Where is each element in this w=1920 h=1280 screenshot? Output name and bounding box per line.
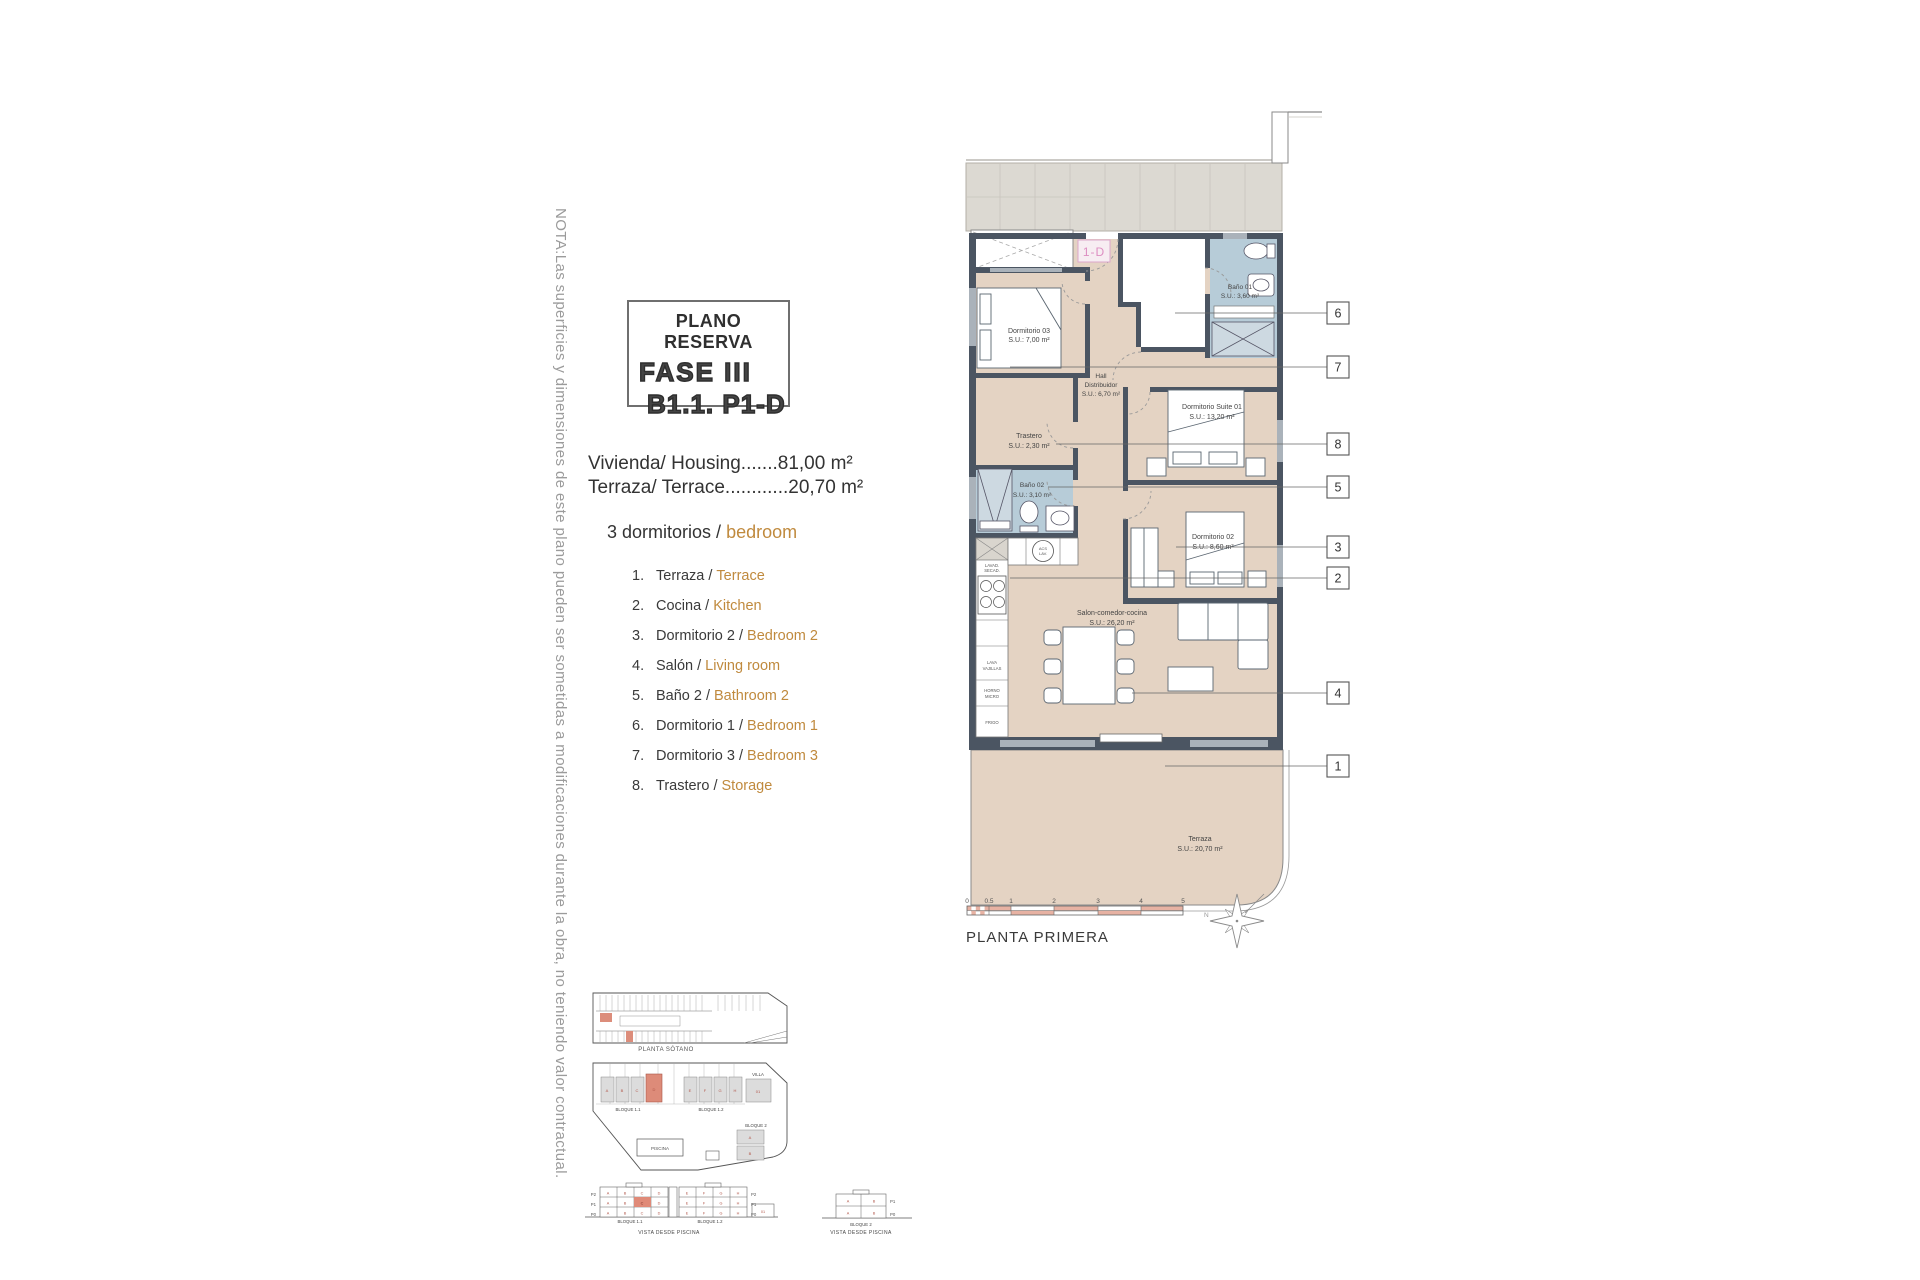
- site-unit-letter: C: [636, 1088, 639, 1093]
- floor-plan: LAVAD. SECAD. LAVA VAJILLAS HORNO MICRO …: [960, 100, 1370, 970]
- legend-item-bano2: 5.Baño 2 /Bathroom 2: [632, 688, 818, 718]
- floor-label-p0: P0: [591, 1212, 597, 1217]
- villa-label: VILLA: [752, 1072, 764, 1077]
- pool-label: PISCINA: [651, 1146, 669, 1151]
- bedrooms-heading-en: bedroom: [726, 522, 797, 542]
- room-area-terraza: S.U.: 20,70 m²: [1177, 846, 1223, 853]
- legend-en: Bedroom 2: [747, 628, 818, 644]
- elev-letter: D: [658, 1192, 661, 1196]
- callout-1: 1: [1335, 760, 1342, 774]
- legend-num: 4.: [632, 658, 656, 674]
- elev-letter: B: [624, 1202, 627, 1206]
- site-unit-letter: B: [749, 1151, 752, 1156]
- callout-2: 2: [1335, 572, 1342, 586]
- floor-title: PLANTA PRIMERA: [966, 929, 1109, 946]
- callout-8: 8: [1335, 438, 1342, 452]
- room-area-trastero: S.U.: 2,30 m²: [1008, 443, 1050, 450]
- room-label-bath1: Baño 01: [1228, 284, 1253, 291]
- elev-letter: H: [737, 1192, 740, 1196]
- legend-es: Salón /: [656, 658, 701, 674]
- legend-en: Kitchen: [713, 598, 761, 614]
- room-legend: 1.Terraza /Terrace 2.Cocina /Kitchen 3.D…: [632, 568, 818, 808]
- site-plan: A B C D E F G H 01 A B BLOQUE 1.1 BLOQUE…: [593, 1063, 787, 1170]
- area-summary: Vivienda/ Housing.......81,00 m² Terraza…: [588, 452, 863, 500]
- block2-elev-caption: BLOQUE 2: [850, 1222, 872, 1227]
- elev-letter: C: [641, 1212, 644, 1216]
- elev-letter: A: [607, 1202, 610, 1206]
- contract-note-vertical: NOTA:Las superficies y dimensiones de es…: [552, 208, 569, 1088]
- elevations: ABCD ABCD ABCD EFGH EFGH EFGH 01 P2 P1 P…: [585, 1183, 912, 1236]
- block12-elev-caption: BLOQUE 1.2: [697, 1219, 723, 1224]
- elev-letter: B: [624, 1192, 627, 1196]
- elev-letter: E: [686, 1192, 689, 1196]
- elev-letter: H: [737, 1212, 740, 1216]
- legend-es: Dormitorio 3 /: [656, 748, 743, 764]
- legend-en: Bedroom 3: [747, 748, 818, 764]
- room-label-bath2: Baño 02: [1020, 482, 1045, 489]
- elev-letter: C: [641, 1202, 644, 1206]
- legend-num: 7.: [632, 748, 656, 764]
- site-unit-letter: H: [734, 1088, 737, 1093]
- site-unit-letter: B: [621, 1088, 624, 1093]
- room-area-dorm2: S.U.: 8,60 m²: [1192, 544, 1234, 551]
- scale-tick-3: 3: [1096, 898, 1100, 905]
- legend-num: 8.: [632, 778, 656, 794]
- corridor-hatch: [966, 160, 1282, 231]
- housing-area-line: Vivienda/ Housing.......81,00 m²: [588, 452, 863, 476]
- legend-num: 5.: [632, 688, 656, 704]
- room-area-suite: S.U.: 13,20 m²: [1189, 414, 1235, 421]
- legend-en: Terrace: [716, 568, 764, 584]
- room-area-dorm3: S.U.: 7,00 m²: [1008, 337, 1050, 344]
- legend-num: 3.: [632, 628, 656, 644]
- legend-item-salon: 4.Salón /Living room: [632, 658, 818, 688]
- title-box: PLANO RESERVA FASE III B1.1. P1-D: [627, 300, 790, 407]
- site-unit-letter: A: [749, 1135, 752, 1140]
- elev-letter: E: [686, 1202, 689, 1206]
- legend-item-trastero: 8.Trastero /Storage: [632, 778, 818, 808]
- terrace-area-line: Terraza/ Terrace............20,70 m²: [588, 476, 863, 500]
- site-unit-letter: A: [606, 1088, 609, 1093]
- legend-num: 2.: [632, 598, 656, 614]
- legend-en: Living room: [705, 658, 780, 674]
- block11-label: BLOQUE 1.1: [615, 1107, 641, 1112]
- bedrooms-heading-es: 3 dormitorios /: [607, 522, 721, 542]
- room-label-salon: Salon-comedor-cocina: [1077, 610, 1147, 617]
- room-label-dorm3: Dormitorio 03: [1008, 328, 1050, 335]
- block11-elev-caption: BLOQUE 1.1: [617, 1219, 643, 1224]
- plan-type-label: PLANO RESERVA: [629, 311, 788, 353]
- legend-es: Baño 2 /: [656, 688, 710, 704]
- floor-label-p1: P1: [890, 1199, 896, 1204]
- unit-tag-label: 1-D: [1083, 245, 1105, 259]
- legend-en: Bathroom 2: [714, 688, 789, 704]
- site-unit-letter: G: [718, 1088, 721, 1093]
- oven-label-2: MICRO: [985, 694, 1000, 699]
- oven-label-1: HORNO: [984, 688, 1000, 693]
- legend-item-dormitorio1: 6.Dormitorio 1 /Bedroom 1: [632, 718, 818, 748]
- scale-tick-1: 1: [1009, 898, 1013, 905]
- room-area-bath2: S.U.: 3,10 m²: [1013, 492, 1052, 499]
- legend-item-cocina: 2.Cocina /Kitchen: [632, 598, 818, 628]
- room-label-hall-2: Distribuidor: [1085, 382, 1119, 389]
- block12-label: BLOQUE 1.2: [698, 1107, 724, 1112]
- scale-tick-5: 5: [1181, 898, 1185, 905]
- room-label-terraza: Terraza: [1188, 836, 1211, 843]
- coffee-table-icon: [1168, 667, 1213, 691]
- legend-es: Cocina /: [656, 598, 709, 614]
- room-area-salon: S.U.: 26,20 m²: [1089, 620, 1135, 627]
- legend-item-dormitorio2: 3.Dormitorio 2 /Bedroom 2: [632, 628, 818, 658]
- floor-label-p2: P2: [591, 1192, 597, 1197]
- unit-code-label: B1.1. P1-D: [647, 389, 788, 419]
- site-unit-letter: E: [689, 1088, 692, 1093]
- legend-es: Dormitorio 2 /: [656, 628, 743, 644]
- room-label-hall-1: Hall: [1095, 373, 1107, 380]
- water-heater-label-2: LAV.: [1039, 551, 1047, 556]
- villa-unit-label: 01: [756, 1089, 761, 1094]
- callout-6: 6: [1335, 307, 1342, 321]
- callout-4: 4: [1335, 687, 1342, 701]
- unit-tag: 1-D: [1078, 240, 1110, 262]
- floor-plan-sheet: { "note": "NOTA:Las superficies y dimens…: [0, 0, 1920, 1280]
- room-label-suite: Dormitorio Suite 01: [1182, 404, 1242, 411]
- basement-plan: PLANTA SÓTANO: [593, 993, 787, 1053]
- small-unit-label: 01: [761, 1210, 765, 1214]
- view-caption-right: VISTA DESDE PISCINA: [830, 1230, 892, 1236]
- party-wall-stub: [1272, 112, 1322, 163]
- room-area-bath1: S.U.: 3,60 m²: [1221, 293, 1260, 300]
- callout-7: 7: [1335, 361, 1342, 375]
- floor-label-p0: P0: [890, 1212, 896, 1217]
- scale-tick-2: 2: [1052, 898, 1056, 905]
- elev-letter: D: [658, 1212, 661, 1216]
- legend-en: Bedroom 1: [747, 718, 818, 734]
- elev-letter: A: [847, 1200, 850, 1204]
- elev-letter: E: [686, 1212, 689, 1216]
- floor-label-p1: P1: [751, 1202, 757, 1207]
- legend-item-terraza: 1.Terraza /Terrace: [632, 568, 818, 598]
- elev-letter: C: [641, 1192, 644, 1196]
- elev-letter: H: [737, 1202, 740, 1206]
- elev-letter: B: [873, 1200, 876, 1204]
- dining-table-icon: [1044, 627, 1134, 704]
- callout-5: 5: [1335, 481, 1342, 495]
- scale-tick-0: 0: [965, 898, 969, 905]
- terrace-floor: [971, 750, 1283, 905]
- view-caption-left: VISTA DESDE PISCINA: [638, 1230, 700, 1236]
- basement-caption: PLANTA SÓTANO: [638, 1046, 694, 1053]
- block2-site-label: BLOQUE 2: [745, 1123, 767, 1128]
- legend-es: Dormitorio 1 /: [656, 718, 743, 734]
- scale-tick-4: 4: [1139, 898, 1143, 905]
- site-unit-letter: D: [653, 1087, 656, 1092]
- elev-letter: A: [607, 1192, 610, 1196]
- dishwasher-label-1: LAVA: [987, 660, 997, 665]
- elev-letter: D: [658, 1202, 661, 1206]
- dishwasher-label-2: VAJILLAS: [983, 666, 1002, 671]
- scale-tick-05: 0.5: [984, 898, 993, 905]
- elev-letter: B: [873, 1212, 876, 1216]
- elev-letter: A: [847, 1212, 850, 1216]
- room-label-trastero: Trastero: [1016, 433, 1042, 440]
- callout-3: 3: [1335, 541, 1342, 555]
- legend-es: Trastero /: [656, 778, 718, 794]
- legend-es: Terraza /: [656, 568, 712, 584]
- phase-label: FASE III: [639, 357, 788, 387]
- floor-label-p0: P0: [751, 1212, 757, 1217]
- legend-num: 6.: [632, 718, 656, 734]
- bedrooms-heading: 3 dormitorios / bedroom: [607, 522, 797, 543]
- elev-letter: G: [720, 1192, 723, 1196]
- floor-label-p2: P2: [751, 1192, 757, 1197]
- elev-letter: A: [607, 1212, 610, 1216]
- legend-item-dormitorio3: 7.Dormitorio 3 /Bedroom 3: [632, 748, 818, 778]
- room-area-hall: S.U.: 6,70 m²: [1082, 391, 1121, 398]
- room-label-dorm2: Dormitorio 02: [1192, 534, 1234, 541]
- fridge-label: FRIGO: [985, 720, 999, 725]
- legend-num: 1.: [632, 568, 656, 584]
- compass-n-label: N: [1204, 912, 1209, 919]
- legend-en: Storage: [722, 778, 773, 794]
- dryer-label: SECAD.: [984, 568, 1000, 573]
- site-key-plans: PLANTA SÓTANO A B C D E F G H 01 A B B: [575, 985, 935, 1250]
- elev-letter: G: [720, 1202, 723, 1206]
- floor-label-p1: P1: [591, 1202, 597, 1207]
- elev-letter: B: [624, 1212, 627, 1216]
- elev-letter: G: [720, 1212, 723, 1216]
